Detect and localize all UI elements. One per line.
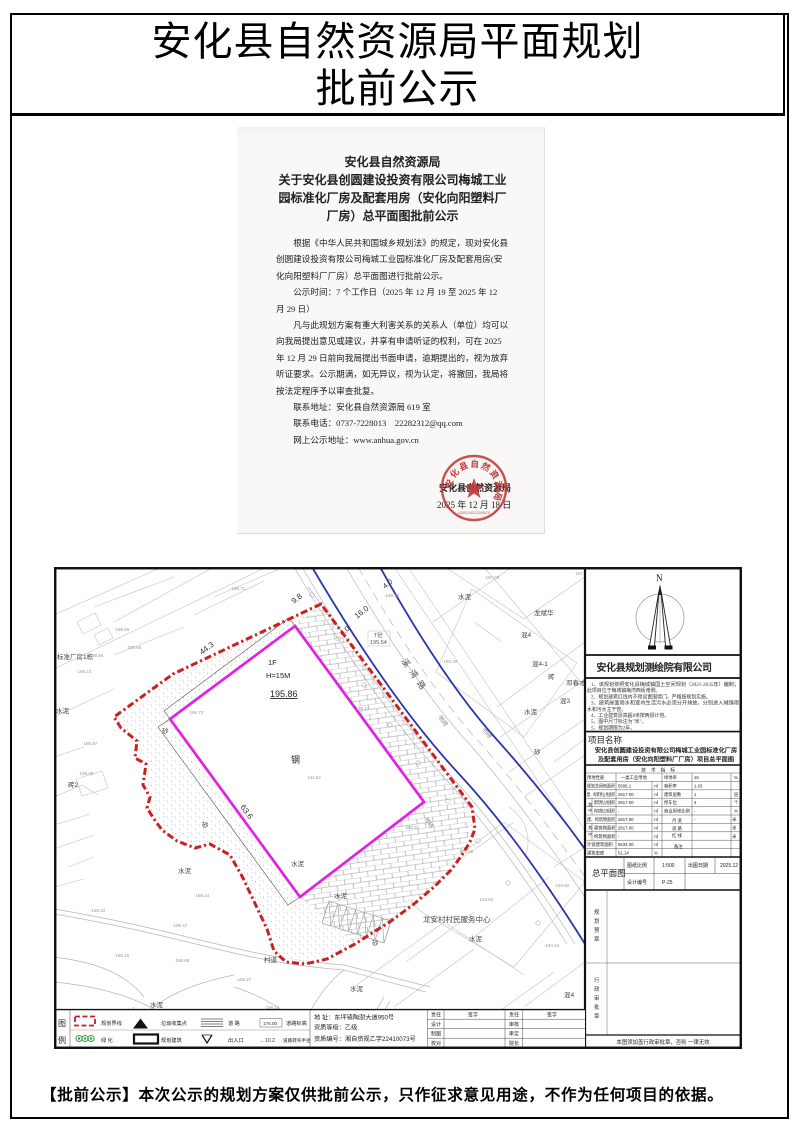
svg-text:·196.12: ·196.12 xyxy=(354,706,370,711)
svg-text:㎡: ㎡ xyxy=(654,791,659,797)
svg-text:红 线: 红 线 xyxy=(672,832,682,838)
svg-text:%: % xyxy=(734,809,738,814)
svg-text:项目名称: 项目名称 xyxy=(588,735,623,745)
svg-text:道 路: 道 路 xyxy=(228,1019,241,1027)
svg-text:水泥: 水泥 xyxy=(350,984,364,993)
svg-text:章: 章 xyxy=(594,1012,600,1020)
svg-text:砂: 砂 xyxy=(202,820,209,829)
svg-text:责任: 责任 xyxy=(509,1012,519,1019)
svg-text:混4: 混4 xyxy=(564,990,575,999)
svg-text:4、工业建筑层高超8米按两层计容。: 4、工业建筑层高超8米按两层计容。 xyxy=(591,712,669,719)
svg-text:龙安村村民服务中心: 龙安村村民服务中心 xyxy=(423,914,491,924)
svg-text:·196.44: ·196.44 xyxy=(194,893,210,898)
svg-text:1、该规划依照安化县梅城镇国土空间规划（2021-2035年: 1、该规划依照安化县梅城镇国土空间规划（2021-2035年）编制； xyxy=(591,681,739,688)
svg-text:规: 规 xyxy=(594,908,600,916)
svg-text:混3: 混3 xyxy=(560,696,571,705)
svg-text:·197.03: ·197.03 xyxy=(484,575,500,580)
svg-text:规划建筑: 规划建筑 xyxy=(161,1036,183,1044)
svg-text:及配套用房（安化向阳塑料厂厂房）项目总平面图: 及配套用房（安化向阳塑料厂厂房）项目总平面图 xyxy=(598,756,734,764)
svg-text:H=15M: H=15M xyxy=(266,671,290,680)
svg-text:备注: 备注 xyxy=(674,843,683,850)
svg-text:绿地率: 绿地率 xyxy=(664,774,678,781)
svg-text:月 道: 月 道 xyxy=(672,817,682,824)
svg-text:中: 中 xyxy=(588,807,592,814)
svg-text:·193.64: ·193.64 xyxy=(478,897,494,902)
svg-text:安化县创圆建设投资有限公司梅城工业园标准化厂房: 安化县创圆建设投资有限公司梅城工业园标准化厂房 xyxy=(595,747,737,755)
svg-text:本图须加盖行政审批章，否则 一律无效: 本图须加盖行政审批章，否则 一律无效 xyxy=(616,1038,710,1046)
svg-text:·200.66: ·200.66 xyxy=(126,645,142,650)
svg-text:建筑物面积: 建筑物面积 xyxy=(594,824,616,831)
svg-text:195.86: 195.86 xyxy=(270,689,298,699)
svg-text:㎡: ㎡ xyxy=(654,816,659,822)
svg-text:制图: 制图 xyxy=(431,1031,441,1038)
svg-text:·195.68: ·195.68 xyxy=(174,958,190,963)
svg-text:·198.23: ·198.23 xyxy=(76,669,92,674)
svg-text:一类工业用地: 一类工业用地 xyxy=(621,774,647,781)
svg-text:1:500: 1:500 xyxy=(662,863,675,869)
svg-text:计容建筑面积: 计容建筑面积 xyxy=(587,841,614,848)
svg-text:村道: 村道 xyxy=(264,955,278,964)
svg-text:㎡: ㎡ xyxy=(654,833,659,839)
svg-text:·198.48: ·198.48 xyxy=(78,771,94,776)
svg-text:例: 例 xyxy=(58,1035,66,1045)
svg-text:·196.47: ·196.47 xyxy=(172,923,188,928)
svg-text:·196.97: ·196.97 xyxy=(82,741,98,746)
svg-text:钢: 钢 xyxy=(291,754,300,765)
svg-text:㎡: ㎡ xyxy=(654,799,659,805)
svg-text:建、构筑物面积: 建、构筑物面积 xyxy=(587,816,616,823)
svg-text:中: 中 xyxy=(588,831,592,838)
svg-text:5634.00: 5634.00 xyxy=(618,842,634,847)
svg-text:审核: 审核 xyxy=(509,1021,519,1028)
svg-text:㎡: ㎡ xyxy=(654,824,659,830)
svg-text:%: % xyxy=(654,851,658,856)
svg-text:章: 章 xyxy=(594,935,600,943)
svg-text:构筑物面积: 构筑物面积 xyxy=(594,833,616,840)
svg-text:责任: 责任 xyxy=(431,1012,441,1019)
svg-text:米: 米 xyxy=(732,833,737,840)
svg-text:·211.52: ·211.52 xyxy=(306,775,321,780)
svg-text:水泥: 水泥 xyxy=(291,859,305,868)
svg-text:·203.51: ·203.51 xyxy=(404,825,420,830)
svg-text:·193.65: ·193.65 xyxy=(458,849,474,854)
svg-text:·199.69: ·199.69 xyxy=(114,627,130,632)
svg-text:砖2: 砖2 xyxy=(68,780,79,789)
svg-text:·196.71: ·196.71 xyxy=(230,586,246,591)
svg-text:道 路: 道 路 xyxy=(672,825,682,832)
svg-text:水泥: 水泥 xyxy=(458,592,472,601)
svg-text:设计: 设计 xyxy=(431,1021,441,1028)
svg-text:商业用地比例: 商业用地比例 xyxy=(664,808,690,815)
svg-text:资质编号：湘自资规乙字22410073号: 资质编号：湘自资规乙字22410073号 xyxy=(314,1035,416,1043)
svg-text:·194.44: ·194.44 xyxy=(544,943,560,948)
svg-text:51.14: 51.14 xyxy=(618,851,629,856)
svg-text:设计编号: 设计编号 xyxy=(627,879,647,886)
svg-text:·196.18: ·196.18 xyxy=(114,953,130,958)
svg-text:垃圾收集点: 垃圾收集点 xyxy=(161,1019,187,1027)
svg-text:2817.00: 2817.00 xyxy=(618,792,634,797)
svg-text:个: 个 xyxy=(734,800,739,805)
svg-text:校对: 校对 xyxy=(431,1040,441,1047)
svg-text:水泥: 水泥 xyxy=(56,706,70,715)
svg-text:邓春才: 邓春才 xyxy=(566,678,586,687)
svg-text:1.03: 1.03 xyxy=(694,783,703,788)
svg-text:㎡: ㎡ xyxy=(654,841,659,847)
svg-text:15: 15 xyxy=(694,775,699,780)
svg-text:2817.00: 2817.00 xyxy=(618,825,634,830)
svg-text:米: 米 xyxy=(732,816,737,823)
svg-text:建筑物占地面积: 建筑物占地面积 xyxy=(594,799,615,806)
svg-text:批: 批 xyxy=(594,1003,600,1011)
svg-text:院长: 院长 xyxy=(509,1040,519,1047)
svg-text:·196.27: ·196.27 xyxy=(236,977,252,982)
svg-text:2、规划建筑红线内不得设置围墙门，严格按规划实施。: 2、规划建筑红线内不得设置围墙门，严格按规划实施。 xyxy=(591,693,711,700)
svg-text:水泥: 水泥 xyxy=(178,866,192,875)
svg-text:砂: 砂 xyxy=(162,726,169,735)
svg-text:T砼: T砼 xyxy=(374,631,383,639)
svg-text:审: 审 xyxy=(594,994,599,1002)
svg-text:行: 行 xyxy=(594,976,600,984)
svg-text:·199.56: ·199.56 xyxy=(88,653,104,658)
svg-text:195.54: 195.54 xyxy=(370,640,387,646)
svg-text:划: 划 xyxy=(594,917,599,925)
svg-text:水和污水主干管。: 水和污水主干管。 xyxy=(587,706,626,713)
svg-text:道路标高: 道路标高 xyxy=(286,1019,307,1027)
svg-text:砂: 砂 xyxy=(534,747,541,756)
svg-text:图纸比例: 图纸比例 xyxy=(627,862,647,869)
svg-text:签字: 签字 xyxy=(547,1012,557,1019)
svg-text:技 术 指 标: 技 术 指 标 xyxy=(641,766,677,773)
svg-text:审定: 审定 xyxy=(509,1031,519,1038)
svg-text:·195.29: ·195.29 xyxy=(442,659,458,664)
svg-text:5506.1: 5506.1 xyxy=(618,783,632,788)
svg-text:资质等级：乙级: 资质等级：乙级 xyxy=(314,1024,357,1032)
svg-text:建筑密度: 建筑密度 xyxy=(587,850,605,857)
svg-text:总平面图: 总平面图 xyxy=(592,868,626,878)
svg-text:道路转弯半径: 道路转弯半径 xyxy=(283,1037,311,1044)
svg-text:1F: 1F xyxy=(268,658,277,667)
svg-text:砂: 砂 xyxy=(372,938,379,947)
svg-text:图: 图 xyxy=(58,1019,66,1028)
svg-text:2817.00: 2817.00 xyxy=(618,800,634,805)
svg-text:签字: 签字 xyxy=(468,1012,478,1019)
svg-text:←10.2: ←10.2 xyxy=(260,1038,275,1044)
svg-text:规划总用地面积: 规划总用地面积 xyxy=(587,782,616,789)
svg-text:5、规划期限为2年。: 5、规划期限为2年。 xyxy=(591,724,635,731)
svg-text:此项目位于梅城镇梅湾西街南侧。: 此项目位于梅城镇梅湾西街南侧。 xyxy=(587,687,660,694)
svg-text:建、构筑物占地面积: 建、构筑物占地面积 xyxy=(587,791,616,798)
svg-text:㎡: ㎡ xyxy=(654,808,659,814)
svg-text:构筑物占地面积: 构筑物占地面积 xyxy=(594,808,615,815)
svg-text:砖: 砖 xyxy=(548,672,555,681)
svg-text:混4: 混4 xyxy=(521,630,532,639)
svg-text:水泥: 水泥 xyxy=(524,707,538,716)
svg-text:规划界线: 规划界线 xyxy=(101,1019,122,1027)
svg-text:%: % xyxy=(734,775,738,780)
svg-text:·195.22: ·195.22 xyxy=(90,908,106,913)
svg-text:P-25: P-25 xyxy=(662,880,673,886)
svg-text:5、图中尺寸标注为"米"。: 5、图中尺寸标注为"米"。 xyxy=(591,718,646,725)
svg-text:预: 预 xyxy=(594,926,600,934)
svg-text:建筑层数: 建筑层数 xyxy=(664,791,682,798)
svg-text:N: N xyxy=(656,573,663,583)
svg-text:·193.60: ·193.60 xyxy=(554,883,570,888)
svg-text:容积率: 容积率 xyxy=(664,782,678,789)
svg-text:水泥: 水泥 xyxy=(469,934,483,943)
svg-text:政: 政 xyxy=(594,985,600,993)
svg-text:龙斌华: 龙斌华 xyxy=(534,608,554,617)
svg-text:·196.46: ·196.46 xyxy=(384,593,400,598)
svg-text:停车位: 停车位 xyxy=(664,799,678,806)
svg-text:3、建筑屋面雨水和室内生活污水必须分开排放，分别进入城镇雨: 3、建筑屋面雨水和室内生活污水必须分开排放，分别进入城镇雨 xyxy=(591,700,739,707)
svg-text:用地性质: 用地性质 xyxy=(587,774,605,781)
svg-text:水泥: 水泥 xyxy=(334,891,348,900)
svg-text:㎡: ㎡ xyxy=(654,782,659,788)
svg-text:·196.73: ·196.73 xyxy=(188,710,204,715)
svg-text:175.00: 175.00 xyxy=(263,1021,277,1026)
svg-text:混4-1: 混4-1 xyxy=(532,659,548,668)
svg-text:地 址：东坪镇陶澍大道950号: 地 址：东坪镇陶澍大道950号 xyxy=(314,1014,394,1022)
svg-text:出图日期: 出图日期 xyxy=(688,862,708,869)
svg-text:2817.00: 2817.00 xyxy=(618,817,634,822)
svg-text:水泥: 水泥 xyxy=(150,1000,164,1009)
svg-text:绿 化: 绿 化 xyxy=(101,1036,113,1044)
svg-text:4309230012345678: 4309230012345678 xyxy=(458,511,490,515)
svg-text:出入口: 出入口 xyxy=(228,1036,244,1044)
svg-text:安化县规划测绘院有限公司: 安化县规划测绘院有限公司 xyxy=(596,661,712,674)
svg-text:米: 米 xyxy=(732,824,737,831)
svg-text:2025.12: 2025.12 xyxy=(720,863,738,869)
